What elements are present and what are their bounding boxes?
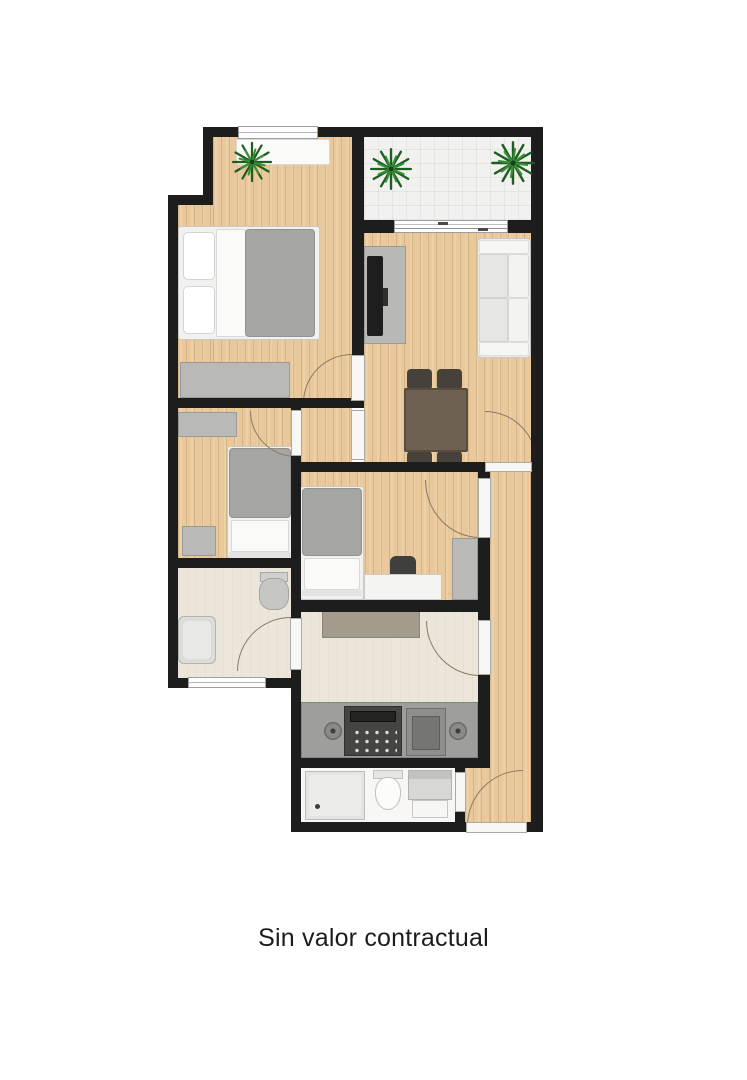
- wall-left-upper: [203, 127, 213, 203]
- corridor-floor: [490, 462, 531, 822]
- sofa-armrest: [479, 240, 529, 254]
- plant-icon: [368, 146, 414, 192]
- wall-bedroom1-south: [168, 398, 364, 408]
- bed-duvet: [229, 448, 291, 518]
- stove-knobs: [349, 726, 397, 753]
- wall-right: [531, 127, 543, 832]
- dining-chair: [407, 369, 432, 390]
- tv-stand: [383, 288, 388, 306]
- bed-duvet: [302, 488, 362, 556]
- sofa-back-cushion: [508, 254, 529, 298]
- toilet-bowl: [375, 777, 401, 810]
- plant-icon: [230, 140, 274, 184]
- balcony-sliding-door: [394, 220, 508, 233]
- bed-pillow: [183, 232, 215, 280]
- window-bedroom-1: [238, 126, 318, 139]
- shower-drain: [315, 804, 320, 809]
- wall-bedroom2-south: [168, 558, 301, 568]
- caption-text: Sin valor contractual: [0, 924, 747, 953]
- sofa-seat-cushion: [479, 298, 508, 342]
- sofa-armrest: [479, 342, 529, 356]
- bed-pillow: [183, 286, 215, 334]
- doorway-kitchen: [478, 620, 491, 675]
- bed-sheet: [216, 229, 246, 337]
- bed-sheet: [231, 520, 289, 552]
- doorway-bathroom-1: [290, 618, 302, 670]
- bathtub-basin: [183, 621, 211, 659]
- sofa-seat-cushion: [479, 254, 508, 298]
- entrance-door-threshold: [466, 822, 527, 833]
- doorway-bedroom-1: [351, 355, 365, 401]
- toilet-bowl: [259, 578, 289, 610]
- tv-screen: [367, 256, 383, 336]
- shelf: [178, 412, 237, 437]
- burner: [449, 722, 467, 740]
- wardrobe: [452, 538, 478, 600]
- sofa-back-cushion: [508, 298, 529, 342]
- sink-pedestal: [412, 800, 448, 818]
- wall-kitchen-north: [291, 600, 490, 612]
- bed-footboard: [302, 590, 362, 596]
- sliding-door-handle: [438, 222, 448, 225]
- doorway-bedroom-2: [291, 410, 302, 456]
- doorway-living-corridor: [485, 462, 532, 472]
- doorway-bedroom-3: [478, 478, 491, 538]
- dining-chair: [437, 369, 462, 390]
- hall-floor: [301, 408, 352, 462]
- plant-icon: [489, 139, 537, 187]
- wall-balcony-stub: [508, 220, 531, 233]
- oven-door: [412, 716, 440, 750]
- wall-bedroom3-north: [291, 462, 483, 472]
- wall-bathroom2-north: [291, 758, 478, 768]
- shower-tray: [309, 775, 361, 816]
- desk: [364, 574, 442, 600]
- dresser: [180, 362, 290, 398]
- bed-duvet: [245, 229, 315, 337]
- kitchen-table: [322, 608, 420, 638]
- sink-vanity-top: [409, 771, 451, 779]
- window-bathroom-1: [188, 677, 266, 688]
- doorway-bathroom-2: [455, 772, 466, 812]
- dining-table: [404, 388, 468, 452]
- wall-balcony-stub: [364, 220, 394, 233]
- stove-display: [350, 711, 396, 722]
- sliding-door-handle: [478, 228, 488, 231]
- wall-left: [168, 195, 178, 688]
- burner: [324, 722, 342, 740]
- bed-sheet: [304, 558, 360, 590]
- wall-bedroom1-east: [352, 127, 364, 355]
- nightstand: [182, 526, 216, 556]
- floor-plan: [0, 0, 747, 1080]
- doorway-hall-living: [351, 410, 365, 460]
